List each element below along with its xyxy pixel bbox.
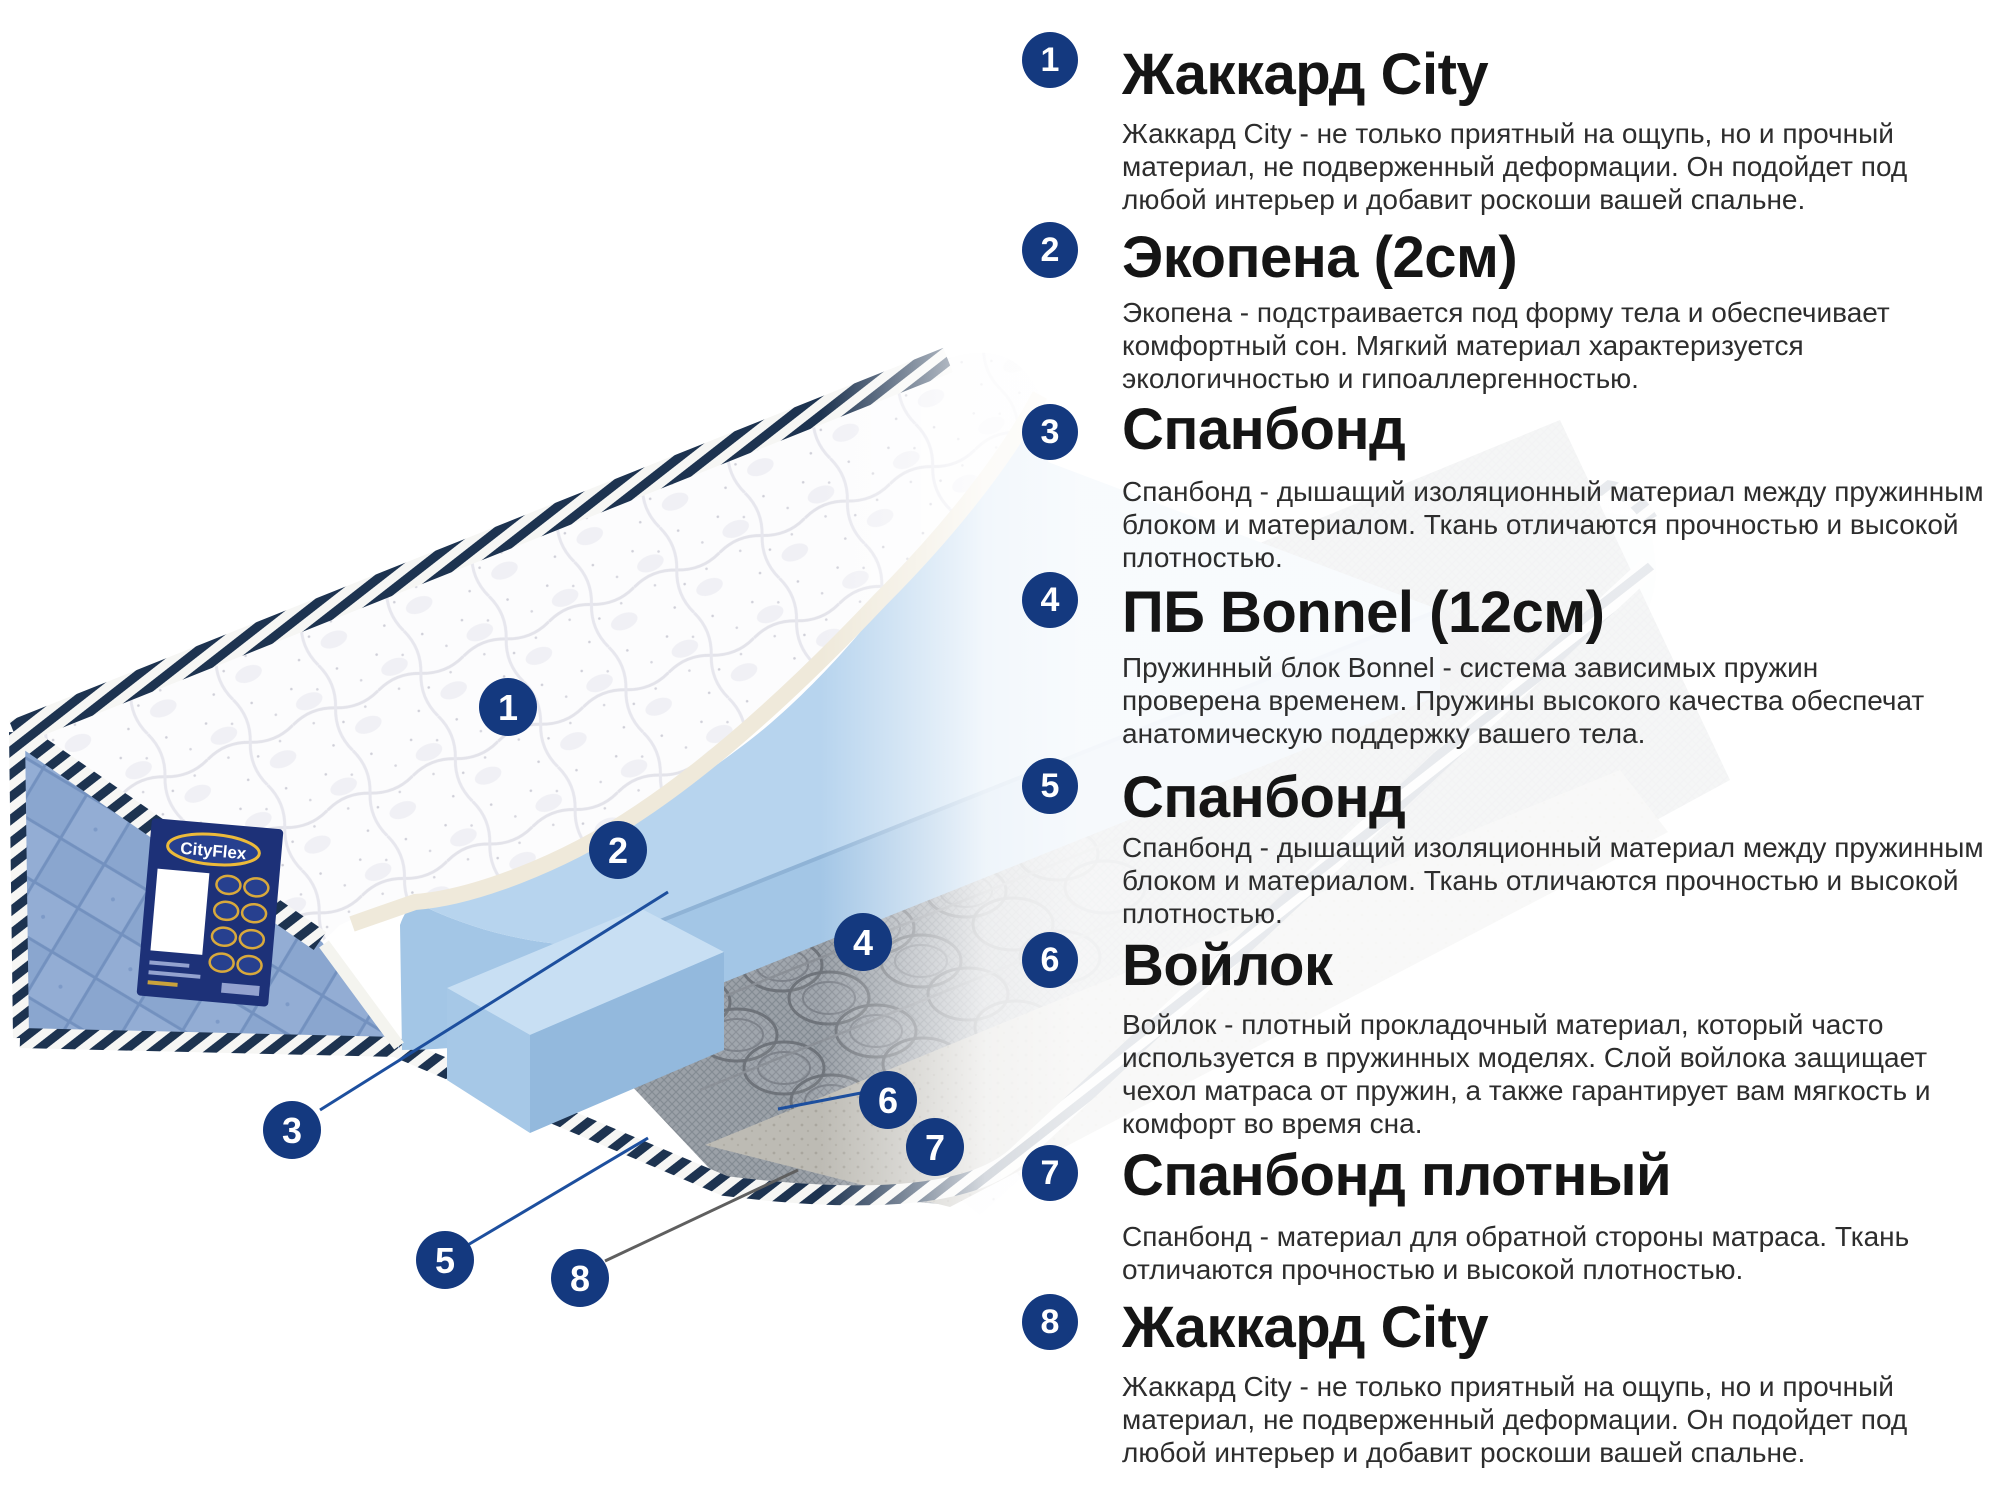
layer-description-5: Спанбонд - дышащий изоляционный материал… — [1122, 831, 2000, 930]
list-badge-1: 1 — [1022, 32, 1078, 88]
layer-title-7: Спанбонд плотный — [1122, 1145, 1671, 1207]
layer-title-1: Жаккард City — [1122, 44, 1488, 106]
layer-description-4: Пружинный блок Bonnel - система зависимы… — [1122, 651, 2000, 750]
list-badge-3: 3 — [1022, 404, 1078, 460]
layer-title-6: Войлок — [1122, 935, 1333, 997]
layer-description-8: Жаккард City - не только приятный на ощу… — [1122, 1370, 2000, 1469]
layers-description-list: 1 Жаккард City Жаккард City - не только … — [0, 0, 2000, 1500]
layer-description-2: Экопена - подстраивается под форму тела … — [1122, 296, 2000, 395]
list-badge-5: 5 — [1022, 758, 1078, 814]
layer-description-1: Жаккард City - не только приятный на ощу… — [1122, 117, 2000, 216]
layer-description-7: Спанбонд - материал для обратной стороны… — [1122, 1220, 2000, 1286]
list-badge-2: 2 — [1022, 222, 1078, 278]
layer-title-2: Экопена (2см) — [1122, 227, 1517, 289]
list-badge-7: 7 — [1022, 1145, 1078, 1201]
list-badge-4: 4 — [1022, 572, 1078, 628]
list-badge-8: 8 — [1022, 1294, 1078, 1350]
layer-title-8: Жаккард City — [1122, 1297, 1488, 1359]
layer-title-3: Спанбонд — [1122, 399, 1405, 461]
layer-title-5: Спанбонд — [1122, 767, 1405, 829]
layer-description-3: Спанбонд - дышащий изоляционный материал… — [1122, 475, 2000, 574]
layer-description-6: Войлок - плотный прокладочный материал, … — [1122, 1008, 2000, 1140]
mattress-layers-infographic: CityFlex 1 2 — [0, 0, 2000, 1500]
list-badge-6: 6 — [1022, 932, 1078, 988]
layer-title-4: ПБ Bonnel (12см) — [1122, 582, 1604, 644]
